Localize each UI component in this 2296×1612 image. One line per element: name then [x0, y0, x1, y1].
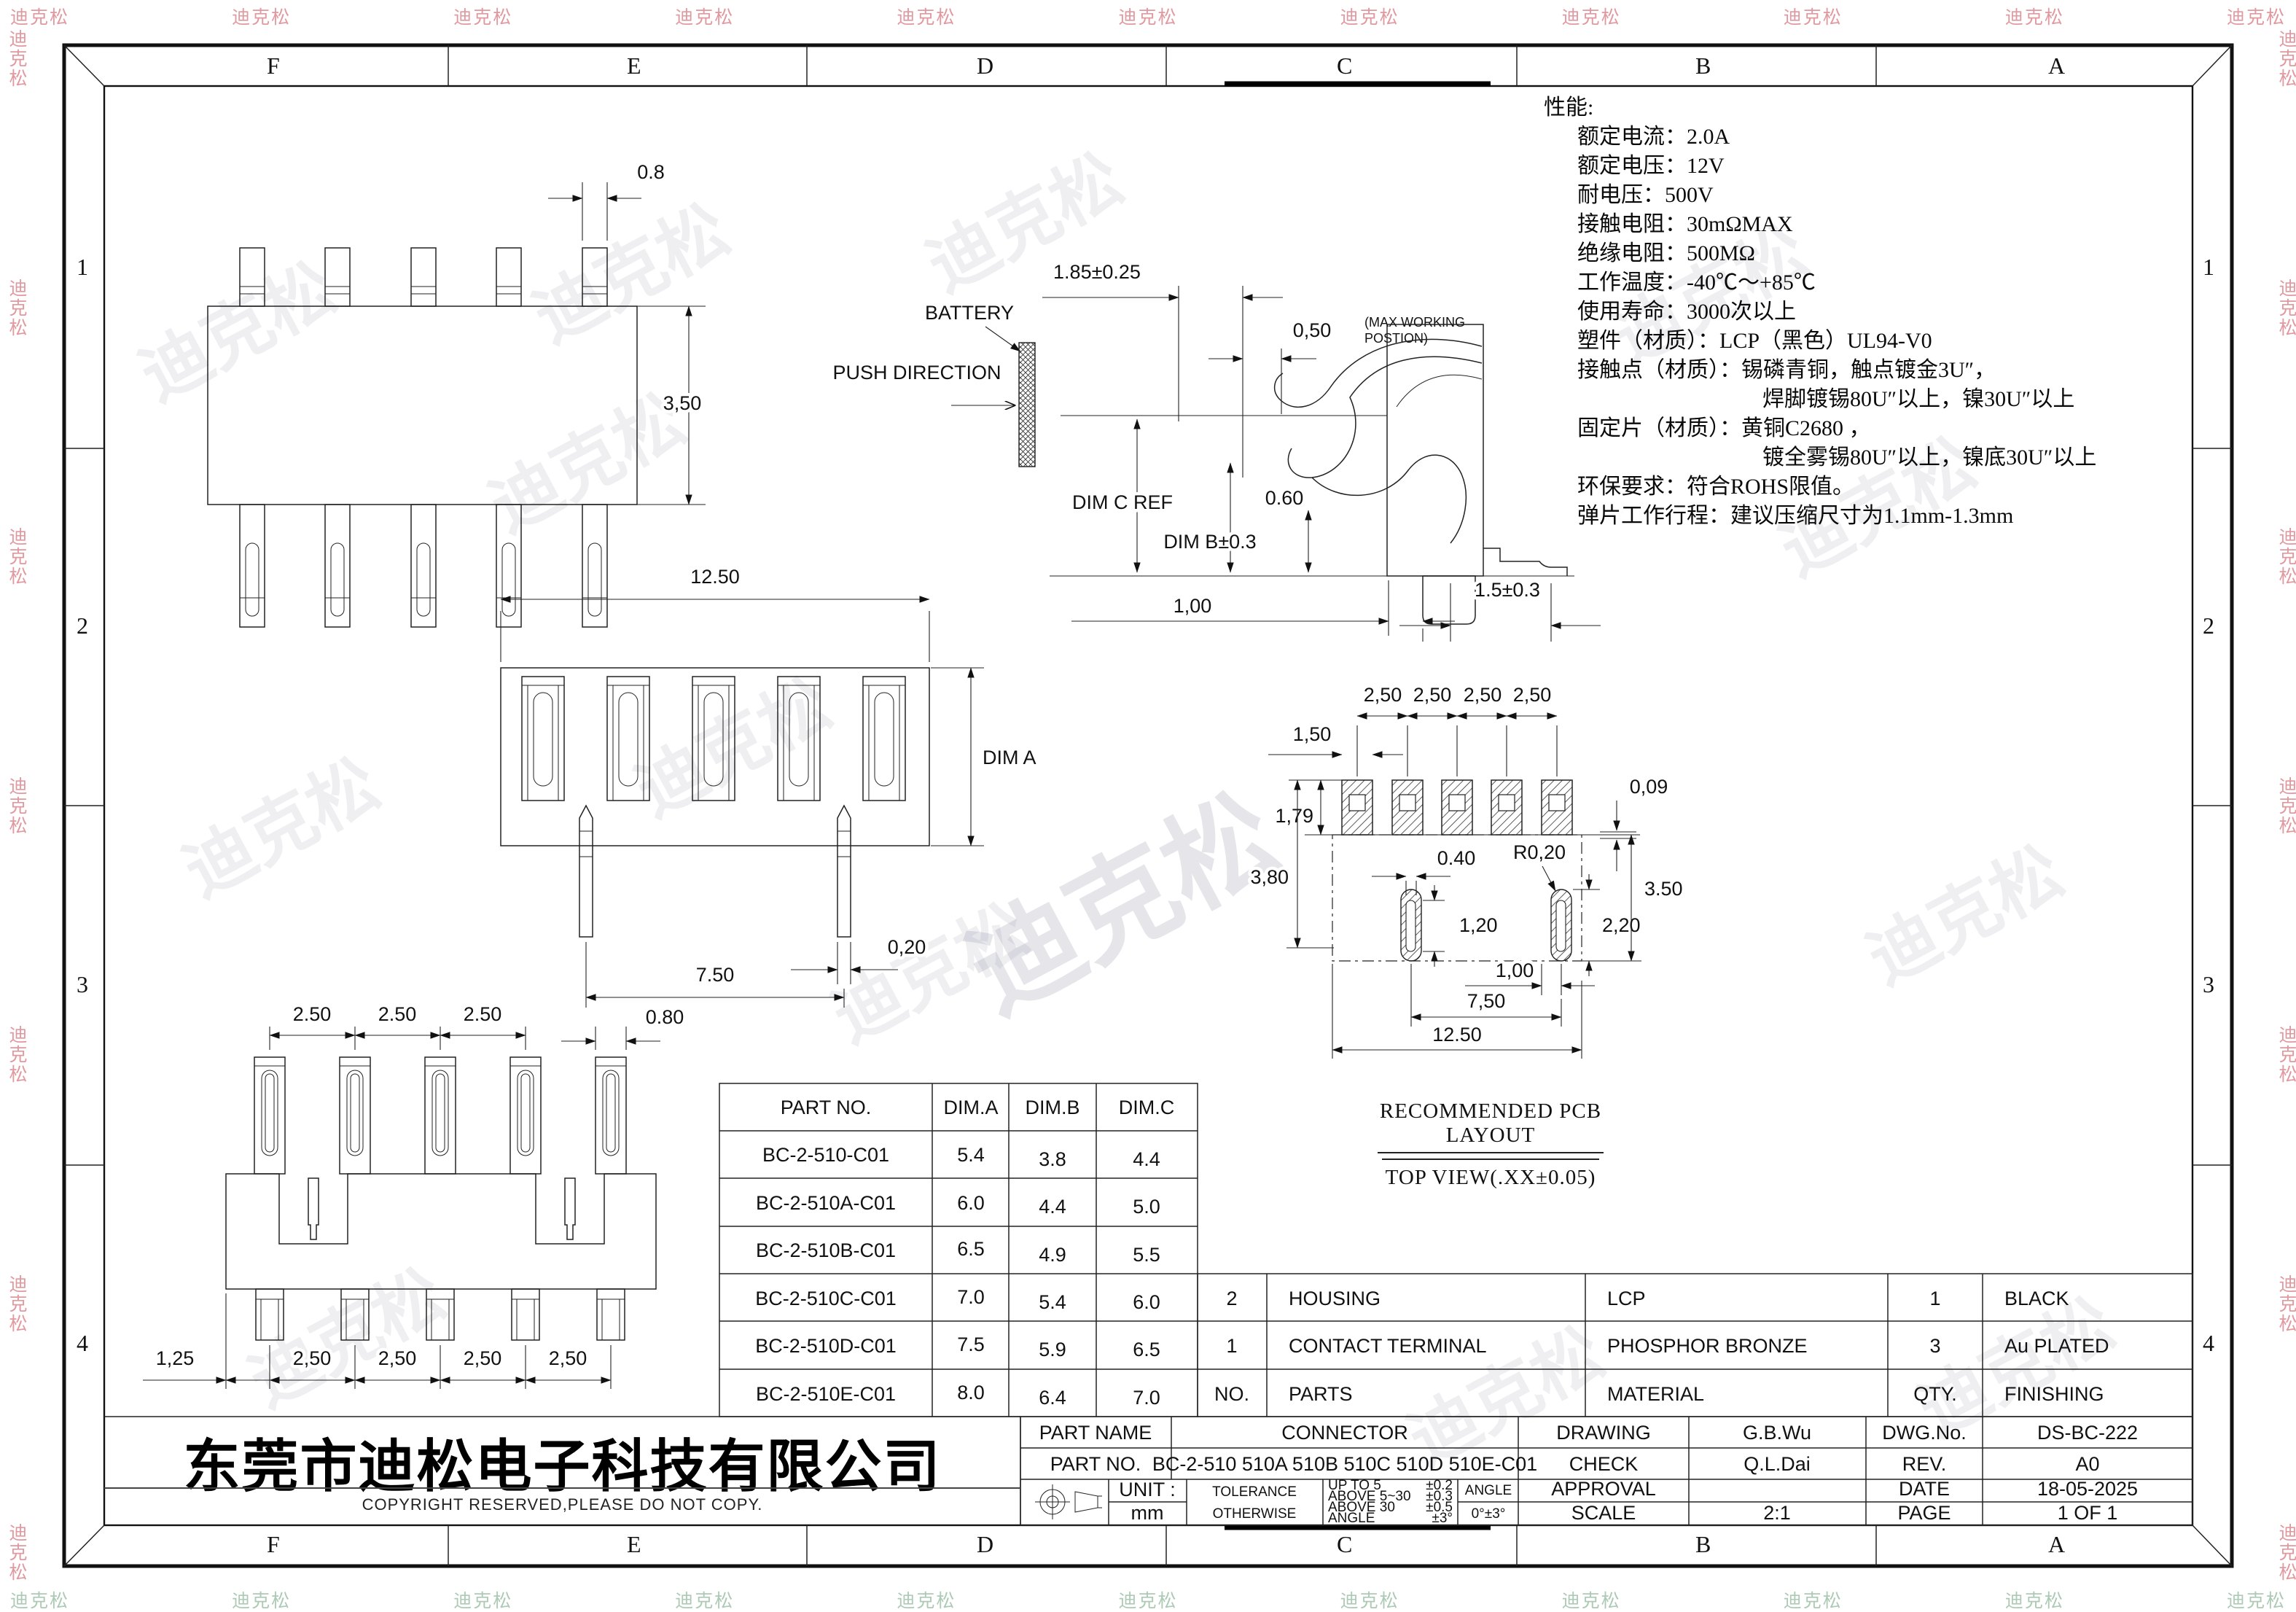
drawing-sheet: 迪克松 迪克松 迪克松 迪克松 迪克松 迪克松 迪克松 迪克松 迪克松 迪克松 …	[0, 0, 2296, 1612]
table-cell: BC-2-510B-C01	[756, 1239, 896, 1261]
scale-label: SCALE	[1571, 1502, 1636, 1524]
angle-value: 0°±3°	[1472, 1506, 1506, 1522]
bom-cell: CONTACT TERMINAL	[1289, 1335, 1487, 1357]
drawing-label: DRAWING	[1556, 1422, 1651, 1444]
table-cell: 7.0	[1133, 1387, 1160, 1409]
table-cell: BC-2-510E-C01	[756, 1383, 896, 1405]
dwgno-label: DWG.No.	[1882, 1422, 1967, 1444]
dim-060: 0.60	[1265, 487, 1304, 509]
table-cell: BC-2-510D-C01	[755, 1335, 897, 1357]
table-cell: BC-2-510A-C01	[756, 1192, 896, 1214]
dwgno-value: DS-BC-222	[2037, 1422, 2138, 1444]
dim-100: 1,00	[1174, 595, 1212, 617]
dim-pcb-179: 1,79	[1275, 805, 1313, 827]
bom-cell: FINISHING	[2004, 1383, 2104, 1405]
bom-cell: 2	[1226, 1288, 1237, 1309]
company-block: 东莞市迪松电子科技有限公司 COPYRIGHT RESERVED,PLEASE …	[104, 1417, 1020, 1525]
table-cell: 6.4	[1039, 1387, 1066, 1409]
page-value: 1 OF 1	[2058, 1502, 2118, 1524]
bom-cell: LCP	[1607, 1288, 1646, 1309]
dim-bottom-pitch: 2.50	[464, 1003, 502, 1025]
dim-pcb-radius: R0,20	[1513, 841, 1566, 863]
dim-side-working-note1: (MAX WORKING	[1364, 315, 1465, 330]
dim-pcb-pitch: 2,50	[1513, 684, 1552, 706]
dim-front-width: 12.50	[690, 566, 740, 588]
dim-b: DIM B±0.3	[1163, 531, 1256, 553]
dim-pcb-pad: 1,50	[1293, 723, 1332, 745]
pcb-caption: RECOMMENDED PCB LAYOUT TOP VIEW(.XX±0.05…	[1378, 1099, 1604, 1190]
table-cell: 7.5	[957, 1333, 985, 1355]
bottom-view-body	[226, 1174, 656, 1289]
rev-value: A0	[2075, 1453, 2099, 1475]
unit-value: mm	[1131, 1502, 1164, 1524]
view-front: 12.50 DIM A 0,20 7.50	[501, 566, 1036, 1008]
bom-cell: QTY.	[1913, 1383, 1957, 1405]
dim-bottom-offset: 1,25	[156, 1347, 195, 1369]
pcb-caption-line2: TOP VIEW(.XX±0.05)	[1378, 1166, 1604, 1190]
check-label: CHECK	[1569, 1453, 1639, 1475]
part-table-header: DIM.B	[1025, 1097, 1079, 1118]
title-block: PART NAME CONNECTOR DRAWING G.B.Wu DWG.N…	[1020, 1417, 2192, 1526]
mount-foot	[1483, 548, 1567, 576]
projection-symbol	[1035, 1484, 1102, 1519]
dim-bottom-pitch: 2,50	[549, 1347, 587, 1369]
dim-top-tab-width: 0.8	[637, 161, 665, 183]
table-cell: 4.9	[1039, 1244, 1066, 1266]
dim-pcb-380: 3,80	[1250, 866, 1289, 888]
dim-pcb-100: 1,00	[1496, 959, 1534, 981]
solder-pins	[579, 806, 851, 937]
bom-table-text: 2 HOUSING LCP 1 BLACK 1 CONTACT TERMINAL…	[1214, 1288, 2109, 1405]
table-cell: 3.8	[1039, 1148, 1066, 1170]
dim-front-pin: 0,20	[888, 936, 926, 958]
pcb-pads	[1342, 780, 1572, 835]
dim-pcb-120: 1,20	[1459, 914, 1498, 936]
dim-c-ref: DIM C REF	[1072, 491, 1173, 513]
part-name-label: PART NAME	[1039, 1422, 1152, 1444]
dim-side-depth: 1.85±0.25	[1053, 261, 1141, 283]
bom-cell: BLACK	[2004, 1288, 2069, 1309]
dim-pcb-009: 0,09	[1630, 776, 1668, 798]
dim-top-height: 3,50	[663, 392, 702, 414]
part-table-header: DIM.C	[1119, 1097, 1175, 1118]
dim-pcb-350: 3.50	[1644, 878, 1683, 900]
part-table-header: DIM.A	[943, 1097, 998, 1118]
dim-a: DIM A	[983, 747, 1036, 768]
table-cell: 8.0	[957, 1382, 985, 1403]
push-direction-label: PUSH DIRECTION	[832, 362, 1001, 383]
pcb-caption-line1: RECOMMENDED PCB LAYOUT	[1378, 1099, 1604, 1153]
bottom-view-pins	[254, 1057, 626, 1174]
dim-bottom-pitch: 2,50	[464, 1347, 502, 1369]
dim-side-working: 0,50	[1293, 319, 1332, 341]
copyright-note: COPYRIGHT RESERVED,PLEASE DO NOT COPY.	[104, 1495, 1020, 1514]
page-label: PAGE	[1897, 1502, 1951, 1524]
table-cell: 6.5	[957, 1238, 985, 1260]
table-cell: 5.5	[1133, 1244, 1160, 1266]
bom-cell: 1	[1929, 1288, 1940, 1309]
top-tabs	[240, 248, 607, 306]
dim-foot: 1.5±0.3	[1475, 579, 1540, 601]
tol-row-label: ANGLE	[1328, 1511, 1375, 1526]
table-cell: 5.4	[957, 1144, 985, 1166]
drawing-value: G.B.Wu	[1743, 1422, 1811, 1444]
bom-cell: 1	[1226, 1335, 1237, 1357]
part-name-value: CONNECTOR	[1281, 1422, 1408, 1444]
pcb-caption-rule	[1382, 1153, 1599, 1160]
dim-bottom-pitch: 2.50	[378, 1003, 417, 1025]
view-top: 0.8 3,50	[208, 161, 706, 627]
part-table-text: PART NO. DIM.A DIM.B DIM.C BC-2-510-C01 …	[755, 1097, 1174, 1409]
battery-label: BATTERY	[925, 302, 1014, 324]
scale-value: 2:1	[1763, 1502, 1791, 1524]
bottom-pin	[1423, 576, 1475, 624]
dim-bottom-pitch: 2.50	[293, 1003, 332, 1025]
part-table-header: PART NO.	[781, 1097, 872, 1118]
bom-cell: MATERIAL	[1607, 1383, 1704, 1405]
view-bottom: 2.50 2.50 2.50 0.80 1,25 2,50 2,50 2,50	[143, 1003, 684, 1389]
company-divider	[104, 1487, 1020, 1489]
partno-label: PART NO.	[1050, 1453, 1141, 1475]
angle-label: ANGLE	[1465, 1483, 1512, 1498]
dim-pcb-040: 0.40	[1437, 847, 1476, 869]
view-side: 1.85±0.25 0,50 (MAX WORKING POSTION) BAT…	[832, 261, 1601, 642]
rev-label: REV.	[1902, 1453, 1947, 1475]
dim-pcb-750: 7,50	[1467, 990, 1506, 1012]
table-cell: BC-2-510C-C01	[755, 1288, 897, 1309]
date-label: DATE	[1899, 1478, 1950, 1500]
dim-pcb-pitch: 2,50	[1413, 684, 1452, 706]
table-cell: 4.4	[1133, 1148, 1160, 1170]
date-value: 18-05-2025	[2037, 1478, 2138, 1500]
bottom-view-feet	[256, 1289, 625, 1340]
tolerance-label2: OTHERWISE	[1213, 1506, 1297, 1522]
dim-pcb-pitch: 2,50	[1464, 684, 1502, 706]
bom-cell: Au PLATED	[2004, 1335, 2109, 1357]
check-value: Q.L.Dai	[1744, 1453, 1811, 1475]
table-cell: 6.0	[957, 1192, 985, 1214]
battery-bar	[1019, 343, 1035, 467]
dim-front-pitch: 7.50	[696, 964, 735, 986]
dim-bottom-pitch: 2,50	[378, 1347, 417, 1369]
table-cell: 5.9	[1039, 1339, 1066, 1360]
table-cell: 5.0	[1133, 1196, 1160, 1218]
table-cell: 7.0	[957, 1286, 985, 1308]
dim-pcb-220: 2,20	[1602, 914, 1641, 936]
table-cell: 4.4	[1039, 1196, 1066, 1218]
company-name: 东莞市迪松电子科技有限公司	[104, 1421, 1020, 1503]
bom-cell: PHOSPHOR BRONZE	[1607, 1335, 1808, 1357]
table-cell: BC-2-510-C01	[762, 1144, 889, 1166]
spring-contact	[1275, 339, 1482, 543]
dim-pcb-1250: 12.50	[1432, 1024, 1482, 1046]
table-cell: 6.0	[1133, 1291, 1160, 1313]
approval-label: APPROVAL	[1551, 1478, 1656, 1500]
bom-cell: NO.	[1214, 1383, 1249, 1405]
table-cell: 6.5	[1133, 1339, 1160, 1360]
dim-bottom-tab: 0.80	[646, 1006, 684, 1028]
drawing-canvas: 0.8 3,50 1.85±0.25 0,50 (MAX WORKING POS…	[0, 0, 2296, 1612]
bottom-legs	[240, 505, 607, 627]
bom-cell: 3	[1929, 1335, 1940, 1357]
bom-cell: PARTS	[1289, 1383, 1353, 1405]
dim-bottom-pitch: 2,50	[293, 1347, 332, 1369]
bom-cell: HOUSING	[1289, 1288, 1381, 1309]
tol-row-value: ±3°	[1432, 1511, 1453, 1526]
table-cell: 5.4	[1039, 1291, 1066, 1313]
tolerance-label1: TOLERANCE	[1212, 1484, 1297, 1500]
dim-pcb-pitch: 2,50	[1364, 684, 1402, 706]
contact-slots	[522, 677, 905, 801]
partno-value: BC-2-510 510A 510B 510C 510D 510E-C01	[1152, 1453, 1537, 1475]
unit-label: UNIT :	[1119, 1479, 1176, 1500]
view-pcb: 2,50 2,50 2,50 2,50 1,50 1,79 3,80 0,09 …	[1250, 684, 1682, 1059]
